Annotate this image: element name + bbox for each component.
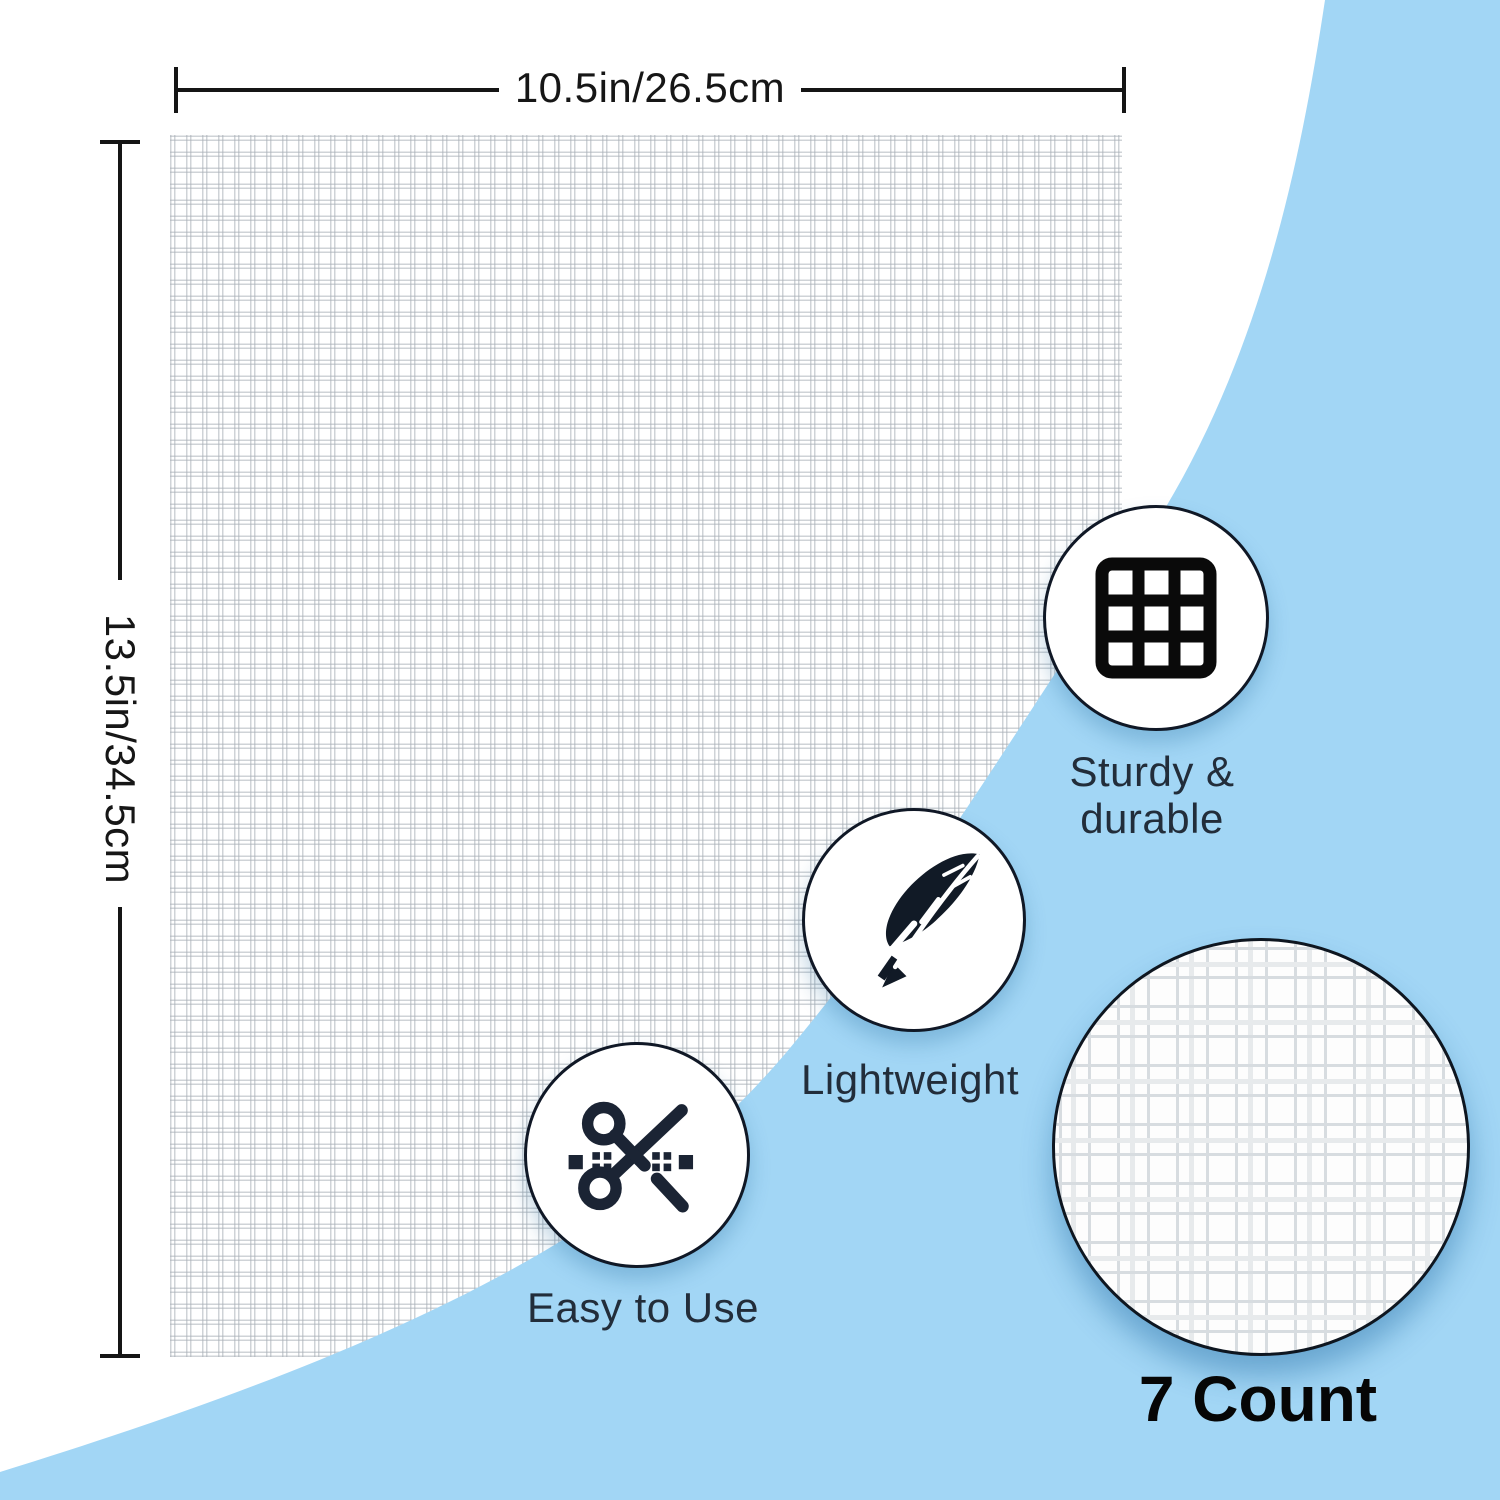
feather-icon — [839, 845, 989, 995]
dimension-tick-bottom — [100, 1354, 140, 1358]
dimension-line-segment — [118, 143, 122, 580]
feature-label-line: Easy to Use — [527, 1284, 759, 1331]
product-infographic: { "product": { "width_label": "10.5in/26… — [0, 0, 1500, 1500]
scissors-icon — [561, 1079, 713, 1231]
feature-label-line: Lightweight — [801, 1056, 1019, 1103]
dimension-tick-right — [1122, 67, 1126, 113]
feature-label-easy: Easy to Use — [473, 1284, 813, 1331]
height-dimension-label: 13.5in/34.5cm — [96, 614, 144, 884]
count-label: 7 Count — [1058, 1362, 1458, 1436]
feature-badge-easy — [524, 1042, 750, 1268]
dimension-line-segment — [801, 88, 1122, 92]
feature-badge-sturdy — [1043, 505, 1269, 731]
mesh-closeup-circle — [1052, 938, 1470, 1356]
feature-label-sturdy: Sturdy & durable — [982, 748, 1322, 842]
feature-label-lightweight: Lightweight — [740, 1056, 1080, 1103]
feature-badge-lightweight — [802, 808, 1026, 1032]
feature-label-line: Sturdy & — [1069, 748, 1234, 795]
width-dimension-label: 10.5in/26.5cm — [515, 64, 785, 112]
dimension-line-segment — [178, 88, 499, 92]
dimension-line-segment — [118, 907, 122, 1355]
grid-icon — [1094, 556, 1218, 680]
feature-label-line: durable — [1080, 795, 1224, 842]
